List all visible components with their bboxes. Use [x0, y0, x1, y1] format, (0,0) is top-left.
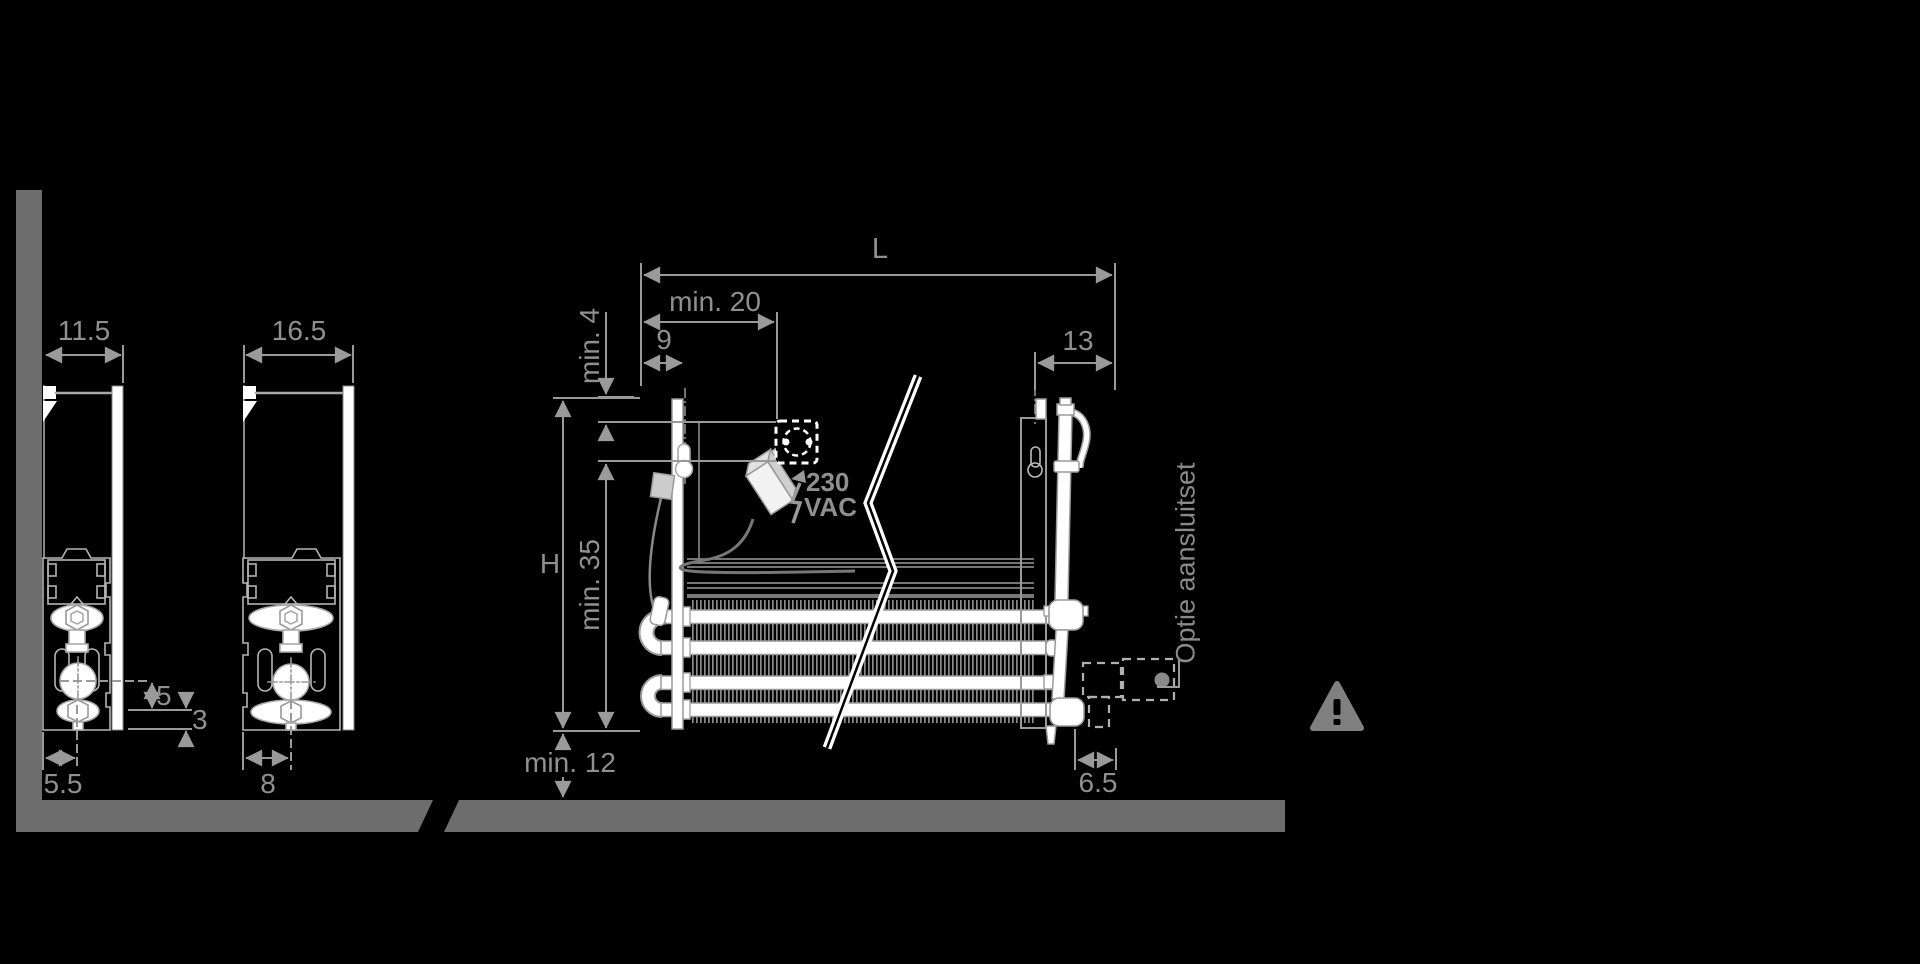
dim-label-length: L [872, 235, 888, 264]
junction-box-icon [649, 473, 674, 627]
dim-label-right-offset: 13 [1062, 327, 1093, 355]
riser-and-valves [1044, 398, 1088, 744]
dim-label-min-socket-distance: min. 20 [669, 288, 761, 316]
installation-diagram: 11.5 16.5 5 3 5.5 8 L min. 20 9 13 min. … [0, 0, 1920, 964]
diagram-drawing [0, 0, 1920, 964]
dim-label-min-floor-clearance: min. 12 [524, 749, 616, 777]
option-connection-set [1083, 659, 1174, 727]
dim-label-depth-large: 16.5 [272, 317, 327, 345]
dim-label-connection-offset: 6.5 [1079, 769, 1118, 797]
power-socket-icon [776, 421, 817, 463]
voltage-unit-label: VAC [804, 494, 857, 520]
dim-label-valve-to-bottom: 3 [192, 706, 208, 734]
dim-label-depth-small: 11.5 [58, 317, 110, 345]
dim-label-min-top-clearance: min. 4 [576, 308, 604, 384]
section-large [243, 386, 354, 730]
dim-label-height: H [540, 550, 560, 578]
section-small [43, 386, 123, 730]
warning-triangle-icon [1313, 684, 1361, 728]
dim-label-center-offset: 8 [260, 770, 276, 798]
floor [16, 800, 1285, 832]
radiator-body [646, 386, 1179, 744]
connection-point-dot [1155, 673, 1170, 688]
wall [16, 190, 42, 801]
dim-label-hang-offset: 9 [656, 326, 672, 354]
option-connection-label: Optie aansluitset [1173, 462, 1200, 663]
dim-label-wall-offset: 5.5 [44, 770, 83, 798]
dim-label-pipe-to-valve: 5 [156, 682, 172, 710]
dim-label-min-socket-bottom: min. 35 [576, 539, 604, 631]
